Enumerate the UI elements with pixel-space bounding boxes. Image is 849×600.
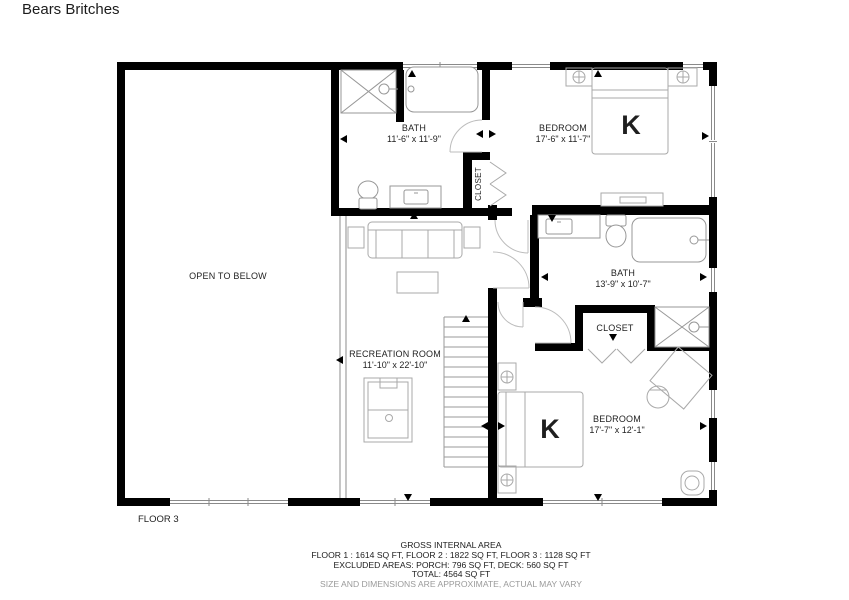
side-table-icon [464, 227, 480, 248]
disclaimer-line: SIZE AND DIMENSIONS ARE APPROXIMATE, ACT… [311, 580, 590, 590]
window [709, 462, 717, 490]
area-summary: GROSS INTERNAL AREA FLOOR 1 : 1614 SQ FT… [311, 541, 590, 590]
nightstand-icon [566, 68, 592, 86]
nightstand-icon [498, 466, 516, 493]
bath2-door [535, 307, 571, 343]
window [709, 390, 717, 418]
stairs-up-arrow [462, 315, 470, 322]
recreation-room-label: RECREATION ROOM [349, 349, 441, 359]
bath2-dims: 13'-9" x 10'-7" [595, 279, 650, 289]
bath1-door [450, 120, 482, 152]
open-to-below-label: OPEN TO BELOW [189, 271, 267, 281]
closet2-label: CLOSET [596, 323, 634, 333]
floorplan-drawing: OPEN TO BELOW BATH 11'-6" x 11'-9" BEDRO… [0, 0, 849, 600]
window [709, 143, 717, 197]
bedroom2-label: BEDROOM [593, 414, 641, 424]
toilet-icon [606, 215, 626, 247]
shower-icon [341, 70, 398, 113]
closet1-label: CLOSET [474, 167, 483, 201]
foosball-table-icon [364, 378, 412, 442]
sink-vanity-icon [538, 215, 600, 238]
nightstand-icon [498, 363, 516, 390]
sink-vanity-icon [390, 186, 441, 208]
bedroom1-label: BEDROOM [539, 123, 587, 133]
floorplan-page: Bears Britches [0, 0, 849, 600]
bedroom1-door [495, 220, 528, 253]
bedroom1-king-bed-label: K [621, 110, 641, 140]
bath1-label: BATH [402, 123, 426, 133]
bath1-dims: 11'-6" x 11'-9" [387, 134, 441, 144]
window [512, 62, 550, 70]
bath2-label: BATH [611, 268, 635, 278]
window [360, 498, 430, 506]
bedroom1-dims: 17'-6" x 11'-7" [536, 134, 591, 144]
chair-icon [681, 471, 704, 495]
recreation-furniture [348, 222, 480, 442]
recreation-room-dims: 11'-10" x 22'-10" [363, 360, 428, 370]
window [709, 86, 717, 142]
side-table-icon [348, 227, 364, 248]
bathtub-icon [406, 67, 478, 112]
closet1-bifold-door [490, 162, 506, 206]
window [170, 498, 288, 506]
bedroom2-king-bed-label: K [540, 414, 560, 444]
window [683, 62, 703, 70]
toilet-icon [358, 181, 378, 209]
hallway-door [493, 252, 529, 288]
coffee-table-icon [397, 272, 438, 293]
bedroom2-dims: 17'-7" x 12'-1" [589, 425, 644, 435]
shower-icon [655, 307, 709, 347]
window [709, 268, 717, 292]
closet2-bifold-door [588, 349, 645, 363]
desk-chair-icon [647, 386, 669, 408]
window [543, 498, 662, 506]
bedroom2-door [498, 302, 523, 327]
dresser-icon [601, 193, 663, 206]
desk-icon [650, 347, 712, 409]
staircase [444, 315, 488, 467]
sofa-icon [368, 222, 462, 258]
bathtub-icon [632, 218, 709, 262]
nightstand-icon [668, 68, 697, 86]
floor-label: FLOOR 3 [138, 514, 179, 525]
